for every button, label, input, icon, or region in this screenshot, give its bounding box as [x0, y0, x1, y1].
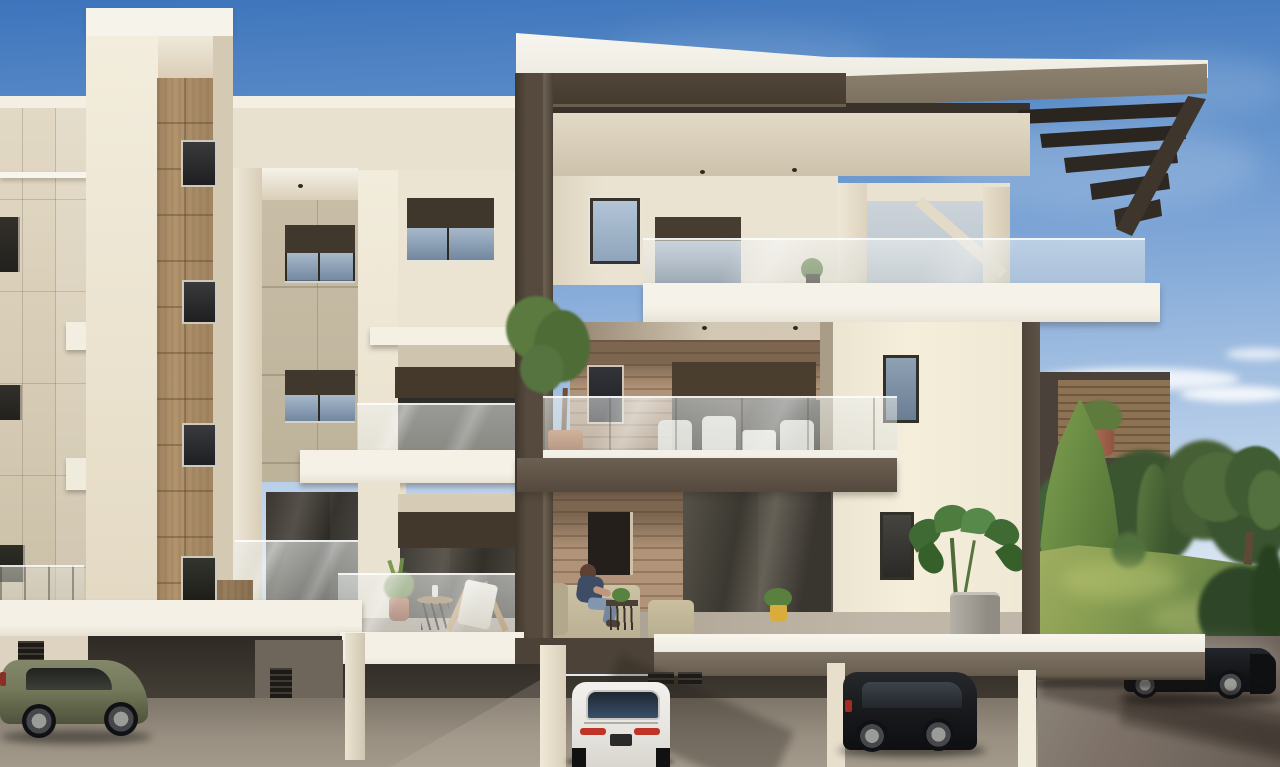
balcony-ceiling-shade [398, 345, 522, 367]
car-wheel [104, 702, 138, 736]
window [590, 198, 640, 264]
car-taillight [634, 728, 660, 735]
left-wing-wall [0, 108, 88, 606]
window [0, 385, 22, 420]
stair-window [181, 140, 217, 187]
dark-slab-fascia [517, 458, 897, 492]
table-plant [612, 588, 630, 602]
coffee-table-base [610, 606, 634, 630]
ground-slab [0, 600, 362, 636]
car-taillight [580, 728, 606, 735]
roller-blind-box [285, 370, 355, 395]
car-shadow [1118, 692, 1280, 706]
concrete-frame-top-beam [515, 73, 846, 107]
balcony-slab [370, 327, 522, 345]
balcony-glass-railing [543, 396, 897, 458]
upper-wall [232, 108, 522, 170]
concrete-frame-right-post [1022, 322, 1040, 644]
lawn-sunlight [1060, 560, 1180, 600]
window-mullion [447, 228, 449, 260]
car-rear-window [586, 690, 660, 720]
roller-blind-box [398, 512, 517, 548]
large-tree [1248, 470, 1280, 530]
window [880, 512, 914, 580]
ground-slab [340, 632, 524, 668]
balcony-tree-canopy [520, 345, 564, 393]
penthouse-glass-railing [643, 238, 1145, 287]
window [0, 217, 20, 272]
roller-blind-box [395, 367, 522, 398]
ceiling-light [700, 170, 705, 174]
black-car-front [1250, 654, 1276, 694]
terrace-slab-white-edge [654, 634, 1205, 654]
sliding-glass-doors [683, 487, 833, 622]
stair-window [182, 423, 217, 467]
stair-window [181, 556, 217, 605]
balcony-slab [300, 450, 524, 483]
tower-cap [86, 8, 233, 36]
roller-blind-box [672, 362, 816, 400]
window [285, 253, 355, 283]
column [1018, 670, 1036, 767]
car-window [862, 682, 962, 708]
car-wheel [856, 720, 888, 752]
tower-edge [213, 36, 233, 636]
window-mullion [318, 395, 320, 421]
door-opening [588, 512, 633, 575]
penthouse-ceiling [553, 113, 1030, 176]
cloud [1180, 386, 1280, 402]
roof-joists [1008, 90, 1218, 240]
car-taillight [845, 700, 852, 712]
ceiling-light [793, 326, 798, 330]
car-tire [572, 748, 586, 767]
column [345, 633, 365, 760]
terrace-glass-railing [338, 573, 522, 636]
window-mullion [318, 253, 320, 281]
architectural-render [0, 0, 1280, 767]
column [540, 645, 566, 767]
window [285, 395, 355, 423]
roller-blind-box [285, 225, 355, 253]
window [407, 228, 494, 263]
penthouse-slab [643, 283, 1160, 322]
car-window [26, 668, 112, 690]
license-plate [610, 734, 632, 746]
ceiling-light [298, 184, 303, 188]
cloud [1226, 348, 1280, 360]
car-wheel [22, 704, 56, 738]
parking-back-wall [255, 640, 343, 704]
stair-window [182, 280, 217, 324]
left-wing-light-line [0, 172, 88, 178]
ceiling-light [792, 168, 797, 172]
car-wheel [922, 718, 955, 751]
car-tire [656, 748, 670, 767]
ceiling-light [702, 326, 707, 330]
roller-blind-box [407, 198, 494, 228]
car-taillight [0, 672, 6, 686]
parapet-band [232, 96, 522, 108]
balcony-ceiling-shade [398, 494, 517, 512]
yellow-pot [770, 605, 787, 622]
car-trunk-line [584, 722, 658, 724]
left-wing-parapet [0, 96, 88, 108]
